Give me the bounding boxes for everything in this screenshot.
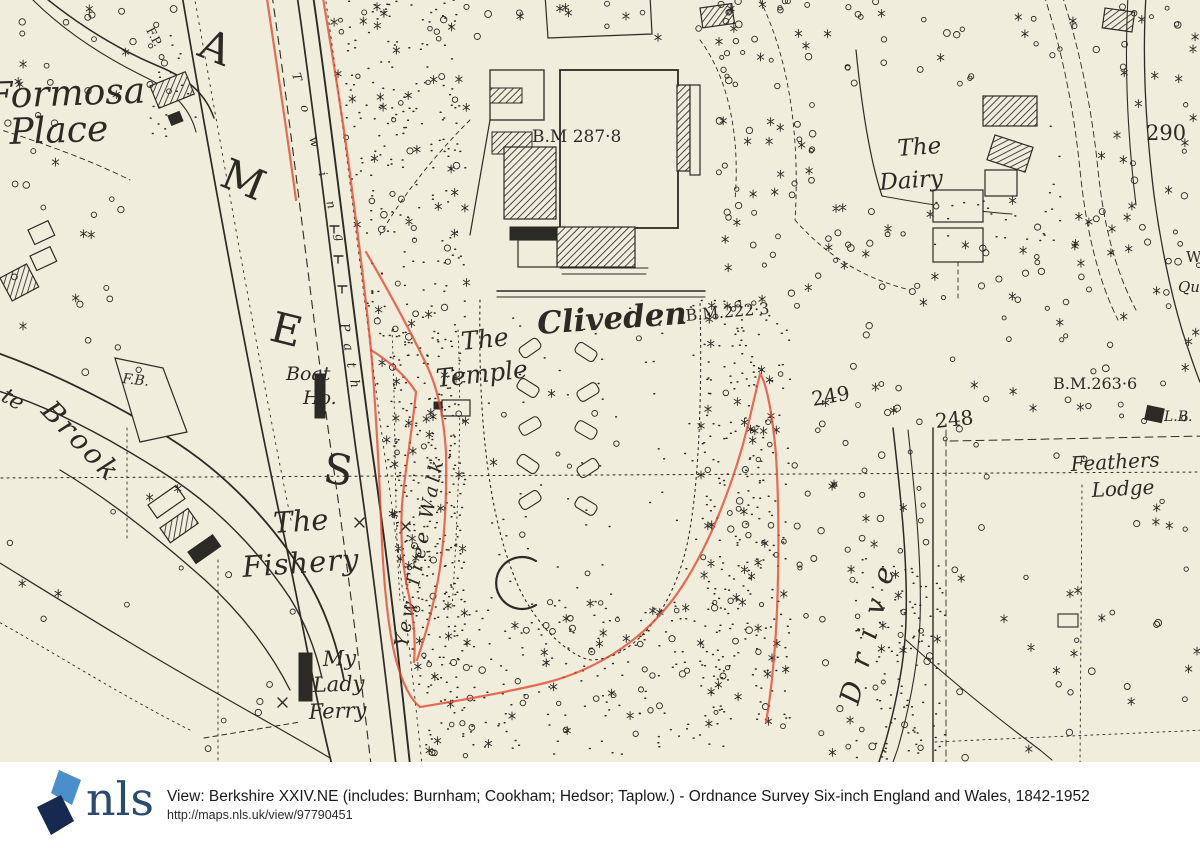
nls-logo: nls xyxy=(34,765,159,845)
map-label-boat-ho: Ho. xyxy=(302,387,337,409)
map-url: http://maps.nls.uk/view/97790451 xyxy=(167,808,1090,822)
nls-logo-mark xyxy=(34,765,92,845)
map-label-mylady-ferry: Ferry xyxy=(307,698,368,724)
map-label-spot-290: 290 xyxy=(1146,121,1186,145)
ordnance-survey-map: FormosaPlaceAMESTowingPathF.P.F.B.teBroo… xyxy=(0,0,1200,762)
nls-map-view-page: FormosaPlaceAMESTowingPathF.P.F.B.teBroo… xyxy=(0,0,1200,848)
topright-building xyxy=(1102,8,1134,32)
map-label-boat: Boat xyxy=(285,363,331,385)
map-label-dairy-the: The xyxy=(897,133,942,162)
map-label-mylady-lady: Lady xyxy=(311,671,366,697)
map-label-fb: F.B. xyxy=(121,371,150,390)
map-label-w-edge: W xyxy=(1186,248,1200,266)
letterbox-building xyxy=(1145,405,1165,422)
map-canvas: FormosaPlaceAMESTowingPathF.P.F.B.teBroo… xyxy=(0,0,1200,762)
nls-wordmark: nls xyxy=(86,759,154,839)
map-label-lodge: Lodge xyxy=(1090,475,1155,502)
map-label-temple-the: The xyxy=(460,322,510,356)
map-label-qu-edge: Qu xyxy=(1178,278,1200,296)
map-label-spot-248: 248 xyxy=(934,405,974,433)
map-label-feathers: Feathers xyxy=(1069,447,1160,476)
attribution-footer: nls View: Berkshire XXIV.NE (includes: B… xyxy=(0,762,1200,848)
map-label-bm287: B.M 287·8 xyxy=(532,127,621,147)
map-caption: View: Berkshire XXIV.NE (includes: Burnh… xyxy=(167,788,1090,822)
map-label-lb: L.B. xyxy=(1163,409,1193,425)
map-label-fishery-the: The xyxy=(272,502,329,540)
map-label-bm263: B.M.263·6 xyxy=(1053,374,1137,393)
map-label-dairy: Dairy xyxy=(878,166,945,197)
map-label-place: Place xyxy=(8,109,109,153)
map-title: View: Berkshire XXIV.NE (includes: Burnh… xyxy=(167,788,1090,806)
map-label-mylady-my: My xyxy=(321,646,357,671)
ferry-building xyxy=(299,653,312,701)
